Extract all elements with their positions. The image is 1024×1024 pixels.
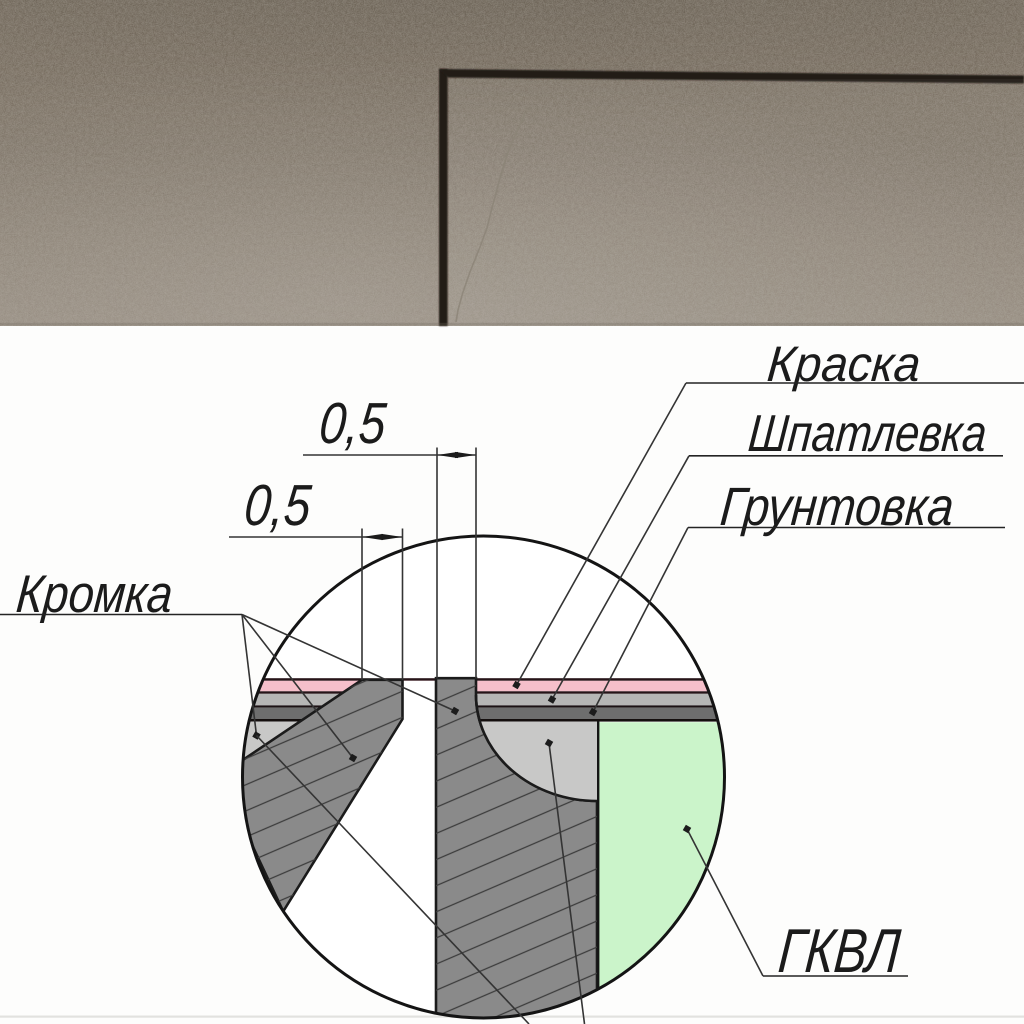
svg-text:Шпатлевка: Шпатлевка <box>746 405 989 463</box>
svg-text:0,5: 0,5 <box>317 391 389 456</box>
svg-text:0,5: 0,5 <box>242 473 314 538</box>
